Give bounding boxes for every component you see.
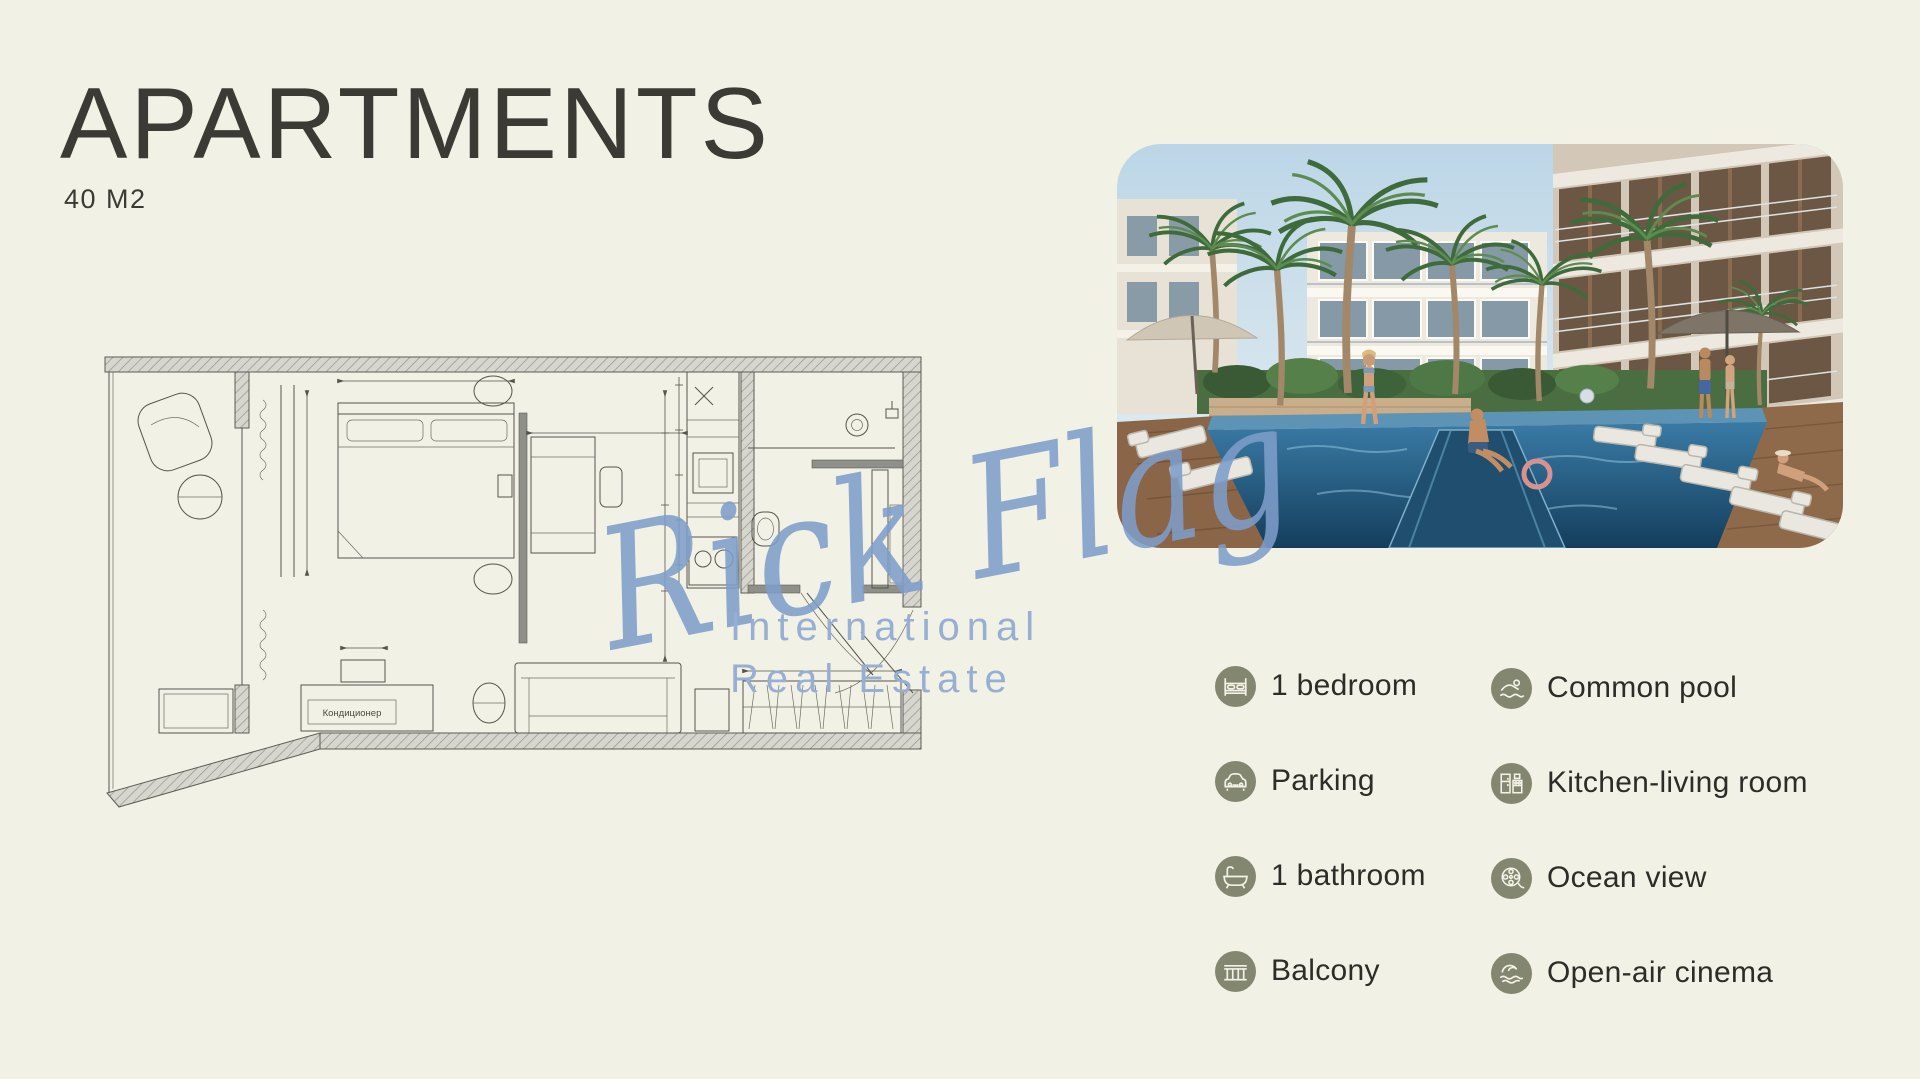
bedroom-furniture	[281, 376, 514, 594]
bathroom-fixtures	[748, 401, 903, 675]
feature-label: Parking	[1271, 764, 1375, 798]
page-title: APARTMENTS	[60, 74, 771, 175]
pool-photo-scene	[1117, 144, 1843, 548]
features-column-left: 1 bedroom Parking	[1215, 665, 1426, 1045]
feature-ocean-view: Ocean view	[1491, 857, 1808, 899]
bed-icon	[1215, 666, 1256, 707]
floor-plan: Кондиционер	[95, 345, 945, 810]
ac-label: Кондиционер	[323, 708, 382, 719]
feature-label: 1 bathroom	[1271, 859, 1426, 893]
balcony-railing-icon	[1215, 951, 1256, 992]
feature-label: Kitchen-living room	[1547, 766, 1808, 800]
swimmer-icon	[1491, 668, 1532, 709]
pool-photo	[1117, 144, 1843, 548]
wave-icon	[1491, 953, 1532, 994]
feature-parking: Parking	[1215, 760, 1426, 802]
wardrobe	[743, 681, 901, 733]
feature-label: Open-air cinema	[1547, 956, 1773, 990]
dimension-lines	[307, 381, 901, 671]
beach-ball	[1580, 389, 1594, 403]
desk-console	[531, 437, 622, 553]
feature-label: 1 bedroom	[1271, 669, 1417, 703]
kitchen-fixtures	[675, 372, 739, 588]
floor-plan-drawing: Кондиционер	[95, 345, 945, 810]
feature-label: Balcony	[1271, 954, 1380, 988]
feature-label: Common pool	[1547, 671, 1737, 705]
feature-bathroom: 1 bathroom	[1215, 855, 1426, 897]
presentation-slide: APARTMENTS 40 M2	[0, 0, 1920, 1079]
kitchen-icon	[1491, 763, 1532, 804]
feature-label: Ocean view	[1547, 861, 1707, 895]
page-subtitle: 40 M2	[64, 184, 147, 215]
features-column-right: Common pool Kitchen-living room	[1491, 667, 1808, 1047]
feature-kitchen-living: Kitchen-living room	[1491, 762, 1808, 804]
feature-common-pool: Common pool	[1491, 667, 1808, 709]
feature-bedroom: 1 bedroom	[1215, 665, 1426, 707]
car-icon	[1215, 761, 1256, 802]
bathtub-icon	[1215, 856, 1256, 897]
film-reel-icon	[1491, 858, 1532, 899]
living-room-furniture: Кондиционер	[301, 660, 729, 733]
feature-balcony: Balcony	[1215, 950, 1426, 992]
balcony-furniture	[133, 388, 233, 733]
feature-open-air-cinema: Open-air cinema	[1491, 952, 1808, 994]
